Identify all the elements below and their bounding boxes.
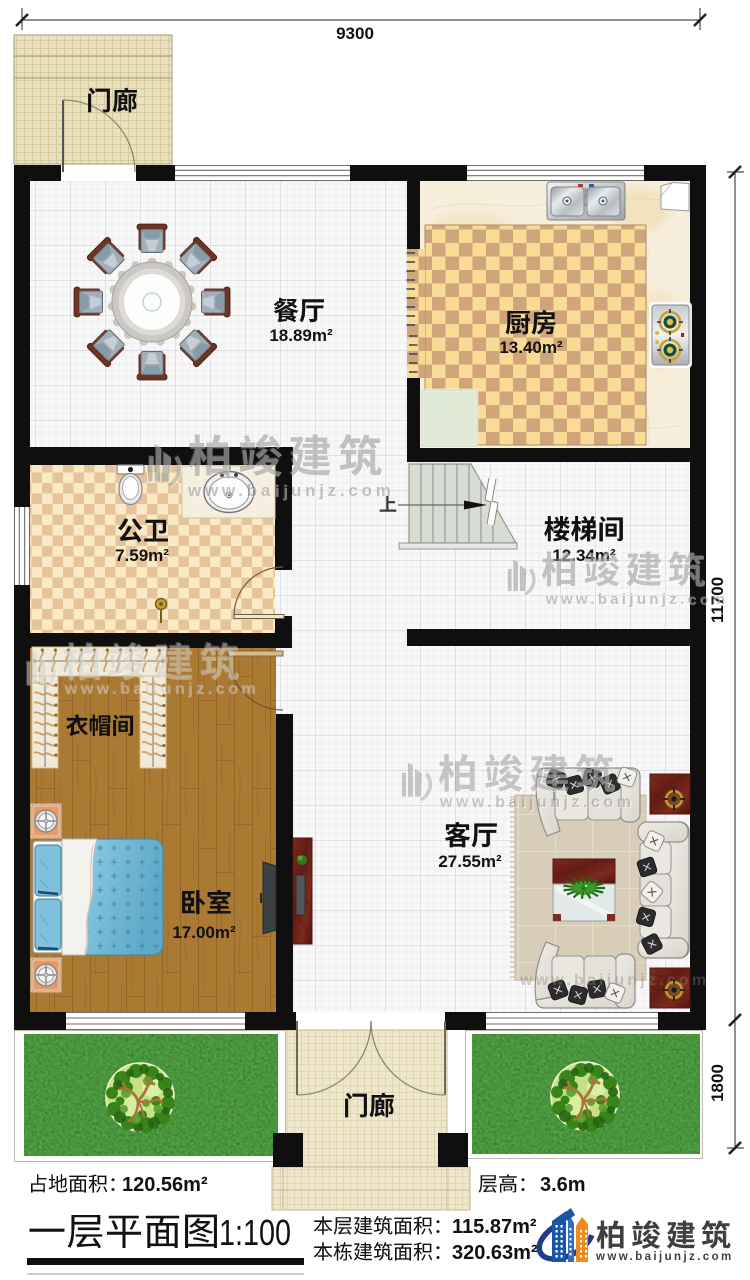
svg-text:www.baijunjz.com: www.baijunjz.com xyxy=(519,972,709,989)
svg-text:www.baijunjz.com: www.baijunjz.com xyxy=(187,481,395,500)
svg-text:www.baijunjz.com: www.baijunjz.com xyxy=(63,680,258,697)
svg-text:3.6m: 3.6m xyxy=(540,1174,586,1196)
svg-text:www.baijunjz.com: www.baijunjz.com xyxy=(545,591,728,608)
svg-text:320.63m²: 320.63m² xyxy=(452,1242,538,1264)
svg-text:18.89m²: 18.89m² xyxy=(269,326,333,345)
svg-text:27.55m²: 27.55m² xyxy=(438,852,502,871)
svg-text:120.56m²: 120.56m² xyxy=(122,1174,208,1196)
svg-text:7.59m²: 7.59m² xyxy=(115,546,169,565)
svg-text:1800: 1800 xyxy=(708,1064,727,1102)
svg-text:1:100: 1:100 xyxy=(219,1212,291,1253)
svg-text:9300: 9300 xyxy=(336,24,374,43)
svg-text:www.baijunjz.com: www.baijunjz.com xyxy=(595,1251,734,1263)
svg-text:17.00m²: 17.00m² xyxy=(172,923,236,942)
svg-text:www.baijunjz.com: www.baijunjz.com xyxy=(439,794,634,811)
svg-text:115.87m²: 115.87m² xyxy=(452,1216,537,1238)
svg-text:13.40m²: 13.40m² xyxy=(499,338,563,357)
